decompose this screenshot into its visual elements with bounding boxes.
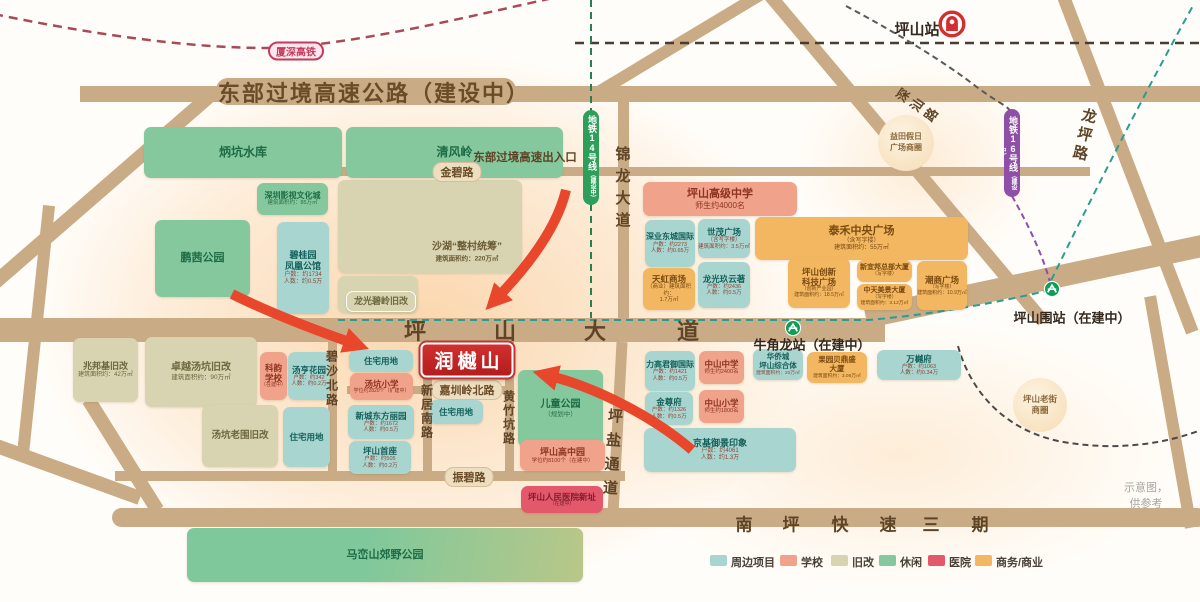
location-map: 润樾山 示意图，供参考 周边项目学校旧改休闲医院商务/商业 炳坑水库清风岭深圳影… [0,0,1200,602]
highlight-arrows [0,0,1200,602]
project-label-runyueshan: 润樾山 [420,343,513,378]
